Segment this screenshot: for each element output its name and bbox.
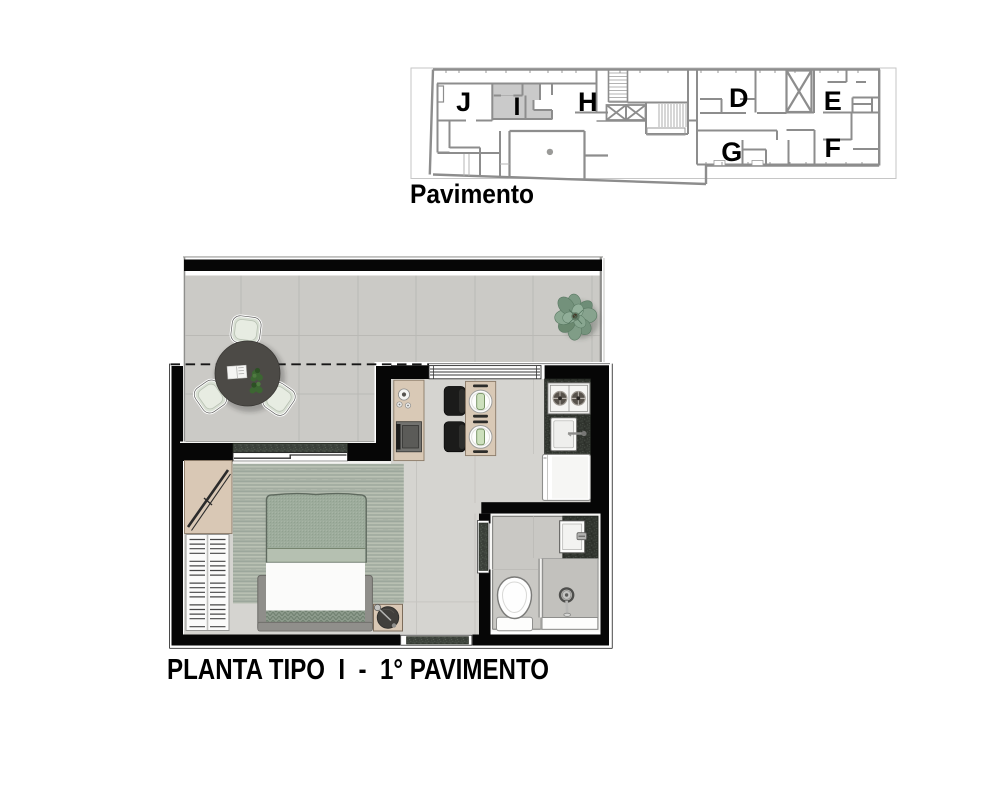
svg-text:H: H	[578, 87, 598, 117]
svg-text:Pavimento: Pavimento	[410, 179, 534, 209]
svg-text:F: F	[824, 133, 841, 163]
svg-text:E: E	[824, 86, 842, 116]
svg-text:G: G	[721, 137, 742, 167]
svg-text:I: I	[514, 93, 521, 121]
svg-text:J: J	[456, 87, 471, 117]
svg-text:PLANTA TIPO I - 1° PAVIMENT: PLANTA TIPO I - 1° PAVIMENTO	[167, 654, 549, 686]
svg-text:D: D	[729, 83, 749, 113]
